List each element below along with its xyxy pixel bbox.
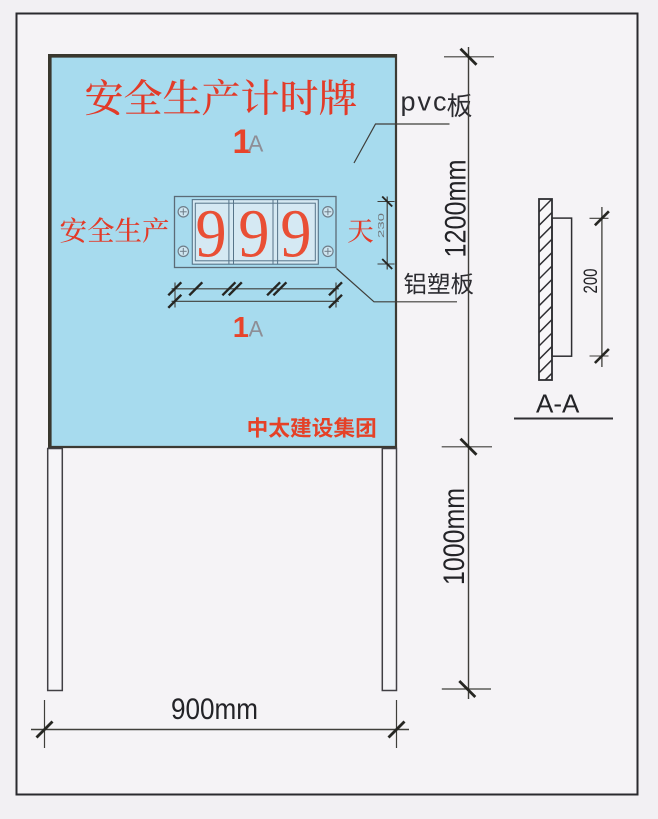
- svg-text:9: 9: [195, 196, 226, 272]
- svg-text:A: A: [248, 131, 264, 157]
- svg-text:900mm: 900mm: [171, 693, 258, 726]
- svg-text:230: 230: [376, 213, 386, 238]
- svg-text:1200mm: 1200mm: [439, 160, 472, 258]
- svg-text:pvc: pvc: [401, 87, 449, 117]
- svg-text:9: 9: [280, 196, 311, 272]
- svg-text:200: 200: [581, 269, 602, 294]
- svg-text:A-A: A-A: [536, 389, 580, 419]
- svg-text:9: 9: [238, 196, 269, 272]
- svg-text:1: 1: [233, 312, 249, 344]
- svg-text:1000mm: 1000mm: [438, 488, 471, 585]
- svg-text:A: A: [249, 317, 264, 342]
